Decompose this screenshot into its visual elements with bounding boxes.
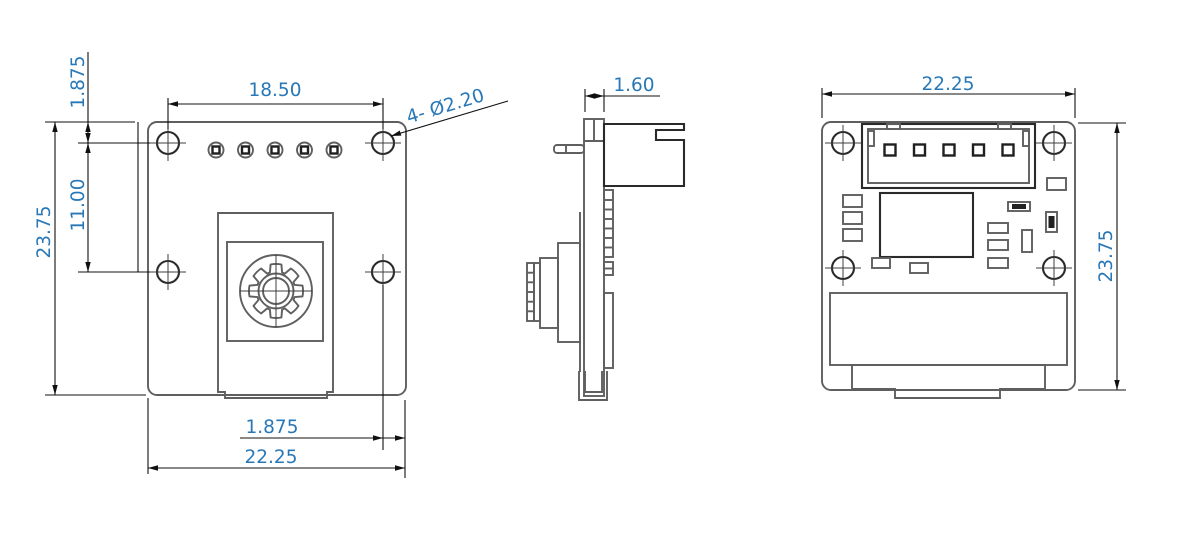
- solder-pad: [327, 143, 342, 158]
- dim-front-height: 23.75: [34, 206, 55, 259]
- dim-back-height: 23.75: [1096, 230, 1117, 283]
- smd-component: [1046, 212, 1057, 232]
- solder-pad: [209, 143, 224, 158]
- connector-pin: [1003, 145, 1014, 156]
- pcb-edge: [584, 119, 604, 396]
- smd-component: [1047, 178, 1066, 190]
- smd-component: [988, 240, 1008, 250]
- smd-component: [872, 258, 890, 268]
- smd-component: [843, 195, 862, 207]
- smd-component: [1008, 202, 1030, 211]
- mounting-hole: [1036, 250, 1072, 286]
- smd-components: [843, 178, 1066, 273]
- ic-chip: [880, 193, 973, 257]
- connector-pins: [885, 145, 1014, 156]
- header-connector: [862, 124, 1035, 188]
- mounting-hole: [150, 125, 186, 161]
- solder-pad: [297, 143, 312, 158]
- dim-hole-top-offset: 1.875: [68, 56, 89, 109]
- solder-pads-front: [209, 143, 342, 158]
- lens-mid-side: [540, 258, 558, 328]
- dim-back-width: 22.25: [922, 74, 975, 95]
- smd-component: [988, 258, 1008, 268]
- mounting-hole: [825, 250, 861, 286]
- dim-hole-pitch-vertical: 11.00: [68, 179, 89, 232]
- connector-pin: [885, 145, 896, 156]
- connector-pin: [973, 145, 984, 156]
- back-view: 22.25 23.75: [822, 74, 1126, 398]
- dim-hole-right-offset: 1.875: [246, 417, 299, 438]
- connector-side-profile: [604, 124, 684, 186]
- pad-ladder: [604, 190, 613, 275]
- connector-pin: [944, 145, 955, 156]
- smd-component: [988, 223, 1008, 233]
- connector-pin: [914, 145, 925, 156]
- dim-front-width: 22.25: [245, 447, 298, 468]
- mounting-hole: [825, 125, 861, 161]
- smd-component: [910, 263, 928, 273]
- lens-stack-side: [527, 212, 580, 372]
- engineering-drawing-sheet: 18.50 4- Ø2.20 1.875 11.00 23.75: [0, 0, 1200, 540]
- board-outline: [148, 122, 406, 395]
- dim-hole-pitch-horizontal: 18.50: [249, 80, 302, 101]
- smd-component: [843, 229, 862, 241]
- mounting-hole: [1036, 125, 1072, 161]
- front-view: 18.50 4- Ø2.20 1.875 11.00 23.75: [34, 52, 508, 478]
- locating-pin: [554, 145, 584, 153]
- mounting-hole: [365, 254, 401, 290]
- dim-hole-callout: 4- Ø2.20: [404, 85, 487, 128]
- smd-component: [843, 212, 862, 224]
- solder-pad: [238, 143, 253, 158]
- mounting-hole: [365, 125, 401, 161]
- solder-pad: [268, 143, 283, 158]
- drawing-svg: 18.50 4- Ø2.20 1.875 11.00 23.75: [0, 0, 1200, 540]
- lens-thread-ribs: [527, 263, 534, 321]
- housing-back: [830, 293, 1067, 365]
- side-dimensions: 1.60: [585, 75, 660, 112]
- lens-housing-side: [558, 243, 580, 342]
- dim-board-thickness: 1.60: [613, 75, 654, 96]
- mounting-hole: [150, 254, 186, 290]
- rear-component-edge: [604, 293, 613, 368]
- smd-component: [1022, 230, 1032, 252]
- side-view: 1.60: [527, 75, 684, 400]
- lens-assembly: [240, 255, 312, 327]
- housing-back-tab: [852, 365, 1045, 398]
